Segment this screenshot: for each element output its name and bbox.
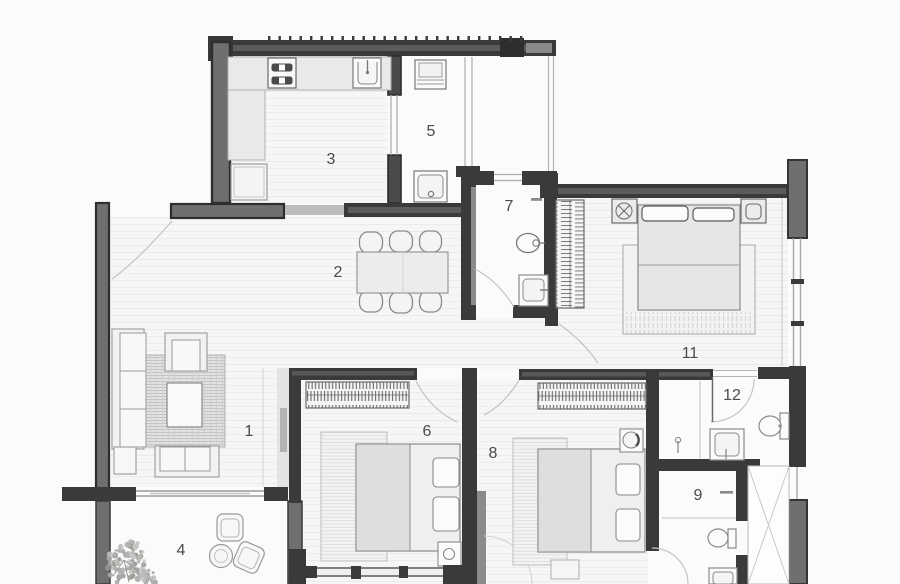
- svg-text:8: 8: [489, 445, 498, 462]
- svg-text:11: 11: [682, 345, 699, 362]
- svg-text:4: 4: [177, 542, 186, 559]
- svg-text:1: 1: [245, 423, 254, 440]
- svg-text:12: 12: [723, 387, 741, 404]
- svg-text:2: 2: [334, 264, 343, 281]
- svg-text:3: 3: [327, 151, 336, 168]
- svg-text:5: 5: [427, 123, 436, 140]
- svg-text:9: 9: [694, 487, 703, 504]
- svg-text:7: 7: [505, 198, 514, 215]
- svg-text:6: 6: [423, 423, 432, 440]
